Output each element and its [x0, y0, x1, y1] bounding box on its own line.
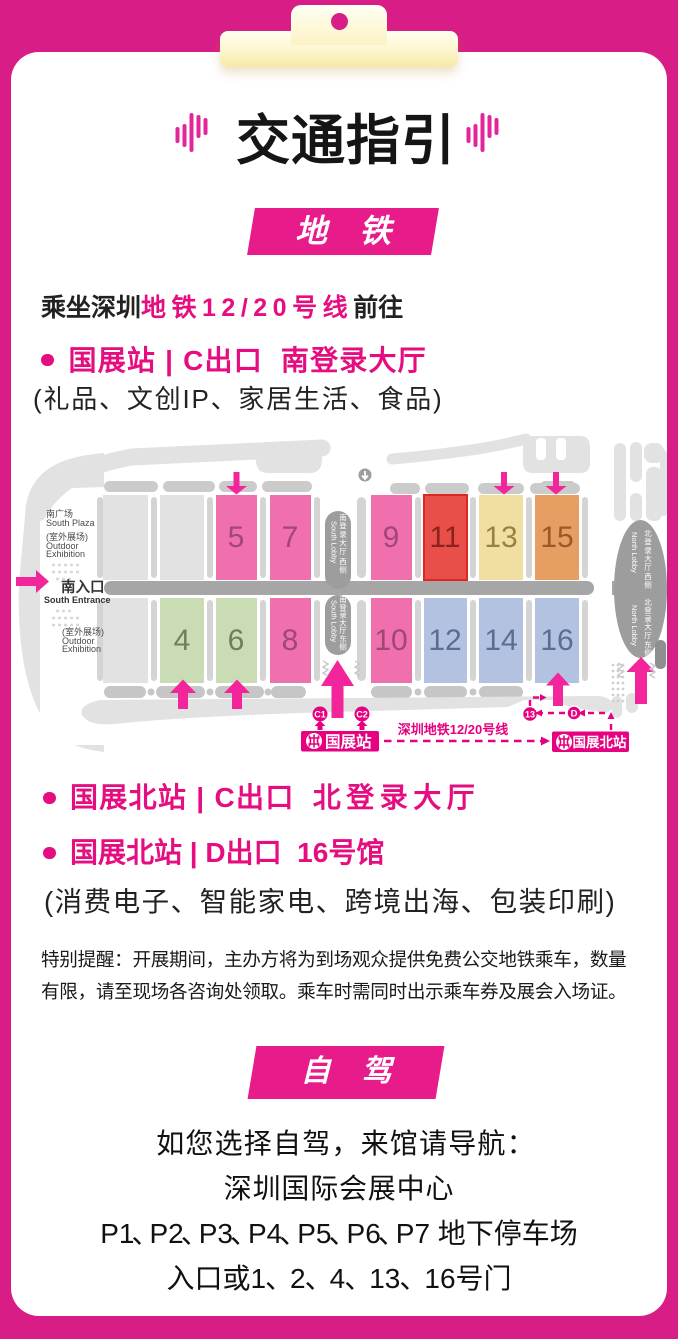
svg-text:South Plaza: South Plaza	[46, 518, 95, 528]
svg-text:C1: C1	[314, 710, 326, 720]
svg-text:国展北站: 国展北站	[573, 734, 627, 750]
svg-text:6: 6	[228, 624, 245, 657]
svg-text:North Lobby: North Lobby	[630, 605, 639, 646]
svg-text:4: 4	[174, 624, 191, 657]
svg-text:South Lobby: South Lobby	[330, 600, 339, 642]
svg-text:Exhibition: Exhibition	[62, 644, 101, 654]
svg-text:15: 15	[540, 521, 573, 554]
svg-text:7: 7	[282, 521, 299, 554]
svg-text:13: 13	[525, 710, 535, 720]
svg-text:南登录大厅西侧: 南登录大厅西侧	[339, 512, 347, 575]
svg-text:南登录大厅东侧: 南登录大厅东侧	[339, 594, 347, 652]
svg-text:北登录大厅西侧: 北登录大厅西侧	[644, 529, 652, 590]
svg-text:深圳地铁12/20号线: 深圳地铁12/20号线	[398, 722, 509, 737]
svg-text:南入口: 南入口	[61, 578, 105, 596]
svg-text:13: 13	[484, 521, 517, 554]
svg-text:South Lobby: South Lobby	[330, 521, 339, 563]
svg-text:16: 16	[540, 624, 573, 657]
svg-text:South Entrance: South Entrance	[44, 595, 111, 605]
svg-text:14: 14	[484, 624, 517, 657]
svg-text:8: 8	[282, 624, 299, 657]
svg-text:9: 9	[383, 521, 400, 554]
svg-text:C2: C2	[356, 710, 368, 720]
svg-text:10: 10	[374, 624, 407, 657]
svg-text:11: 11	[429, 521, 460, 554]
svg-text:Exhibition: Exhibition	[46, 549, 85, 559]
svg-text:D: D	[571, 709, 578, 720]
svg-text:12: 12	[428, 624, 461, 657]
svg-text:国展站: 国展站	[325, 732, 372, 751]
svg-text:北登录大厅东侧: 北登录大厅东侧	[644, 598, 652, 658]
svg-text:North Lobby: North Lobby	[630, 532, 639, 573]
svg-text:5: 5	[228, 521, 245, 554]
